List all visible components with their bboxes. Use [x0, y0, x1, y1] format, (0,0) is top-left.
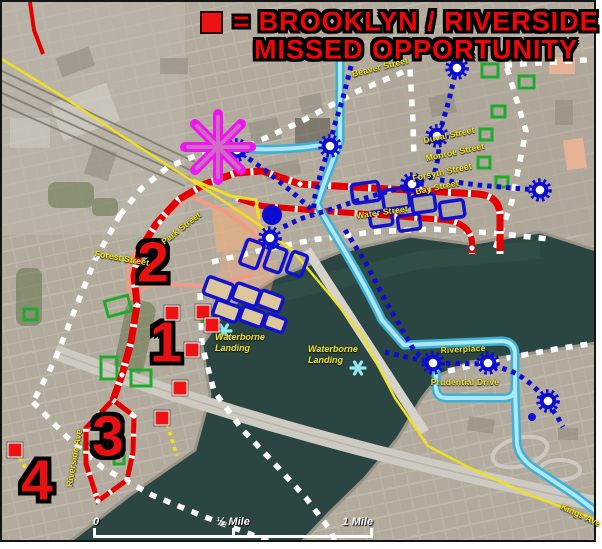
scale-half-mile-label: ½ Mile: [216, 516, 250, 528]
title-line-2: MISSED OPPORTUNITY: [254, 35, 578, 66]
area-number-3: 3: [92, 409, 124, 466]
street-label: Riverplace: [440, 343, 485, 355]
map: = BROOKLYN / RIVERSIDE MISSED OPPORTUNIT…: [0, 0, 602, 549]
missed-opportunity-marker: [185, 343, 200, 358]
scale-bar-tick-mid: [232, 528, 235, 538]
scale-bar: 0 ½ Mile 1 Mile: [93, 517, 373, 541]
street-label: Prudential Drive: [431, 377, 499, 387]
area-number-1: 1: [150, 315, 182, 372]
missed-opportunity-marker: [205, 318, 220, 333]
area-number-4: 4: [21, 453, 53, 510]
street-label: Park Street: [159, 210, 202, 247]
missed-opportunity-marker: [155, 411, 170, 426]
missed-opportunity-marker: [8, 443, 23, 458]
street-label: Water Street: [355, 203, 408, 220]
waterborne-landing-label: Waterborne Landing: [215, 332, 279, 355]
missed-opportunity-marker: [165, 306, 180, 321]
annotation-overlay: = BROOKLYN / RIVERSIDE MISSED OPPORTUNIT…: [0, 0, 602, 549]
title-line-1: = BROOKLYN / RIVERSIDE: [233, 7, 598, 38]
street-label: Riverside Ave: [64, 428, 84, 487]
street-label: Kings Ave: [560, 501, 602, 528]
street-label: Duval Street: [423, 125, 476, 146]
legend-missed-opportunity-square-icon: [200, 11, 223, 34]
scale-bar-tick-end: [370, 528, 373, 538]
waterborne-landing-label: Waterborne Landing: [308, 344, 372, 367]
scale-one-mile-label: 1 Mile: [342, 516, 373, 528]
missed-opportunity-marker: [173, 381, 188, 396]
street-label: Monroe Street: [425, 141, 486, 163]
scale-bar-tick-start: [93, 528, 96, 538]
scale-zero-label: 0: [93, 516, 99, 528]
